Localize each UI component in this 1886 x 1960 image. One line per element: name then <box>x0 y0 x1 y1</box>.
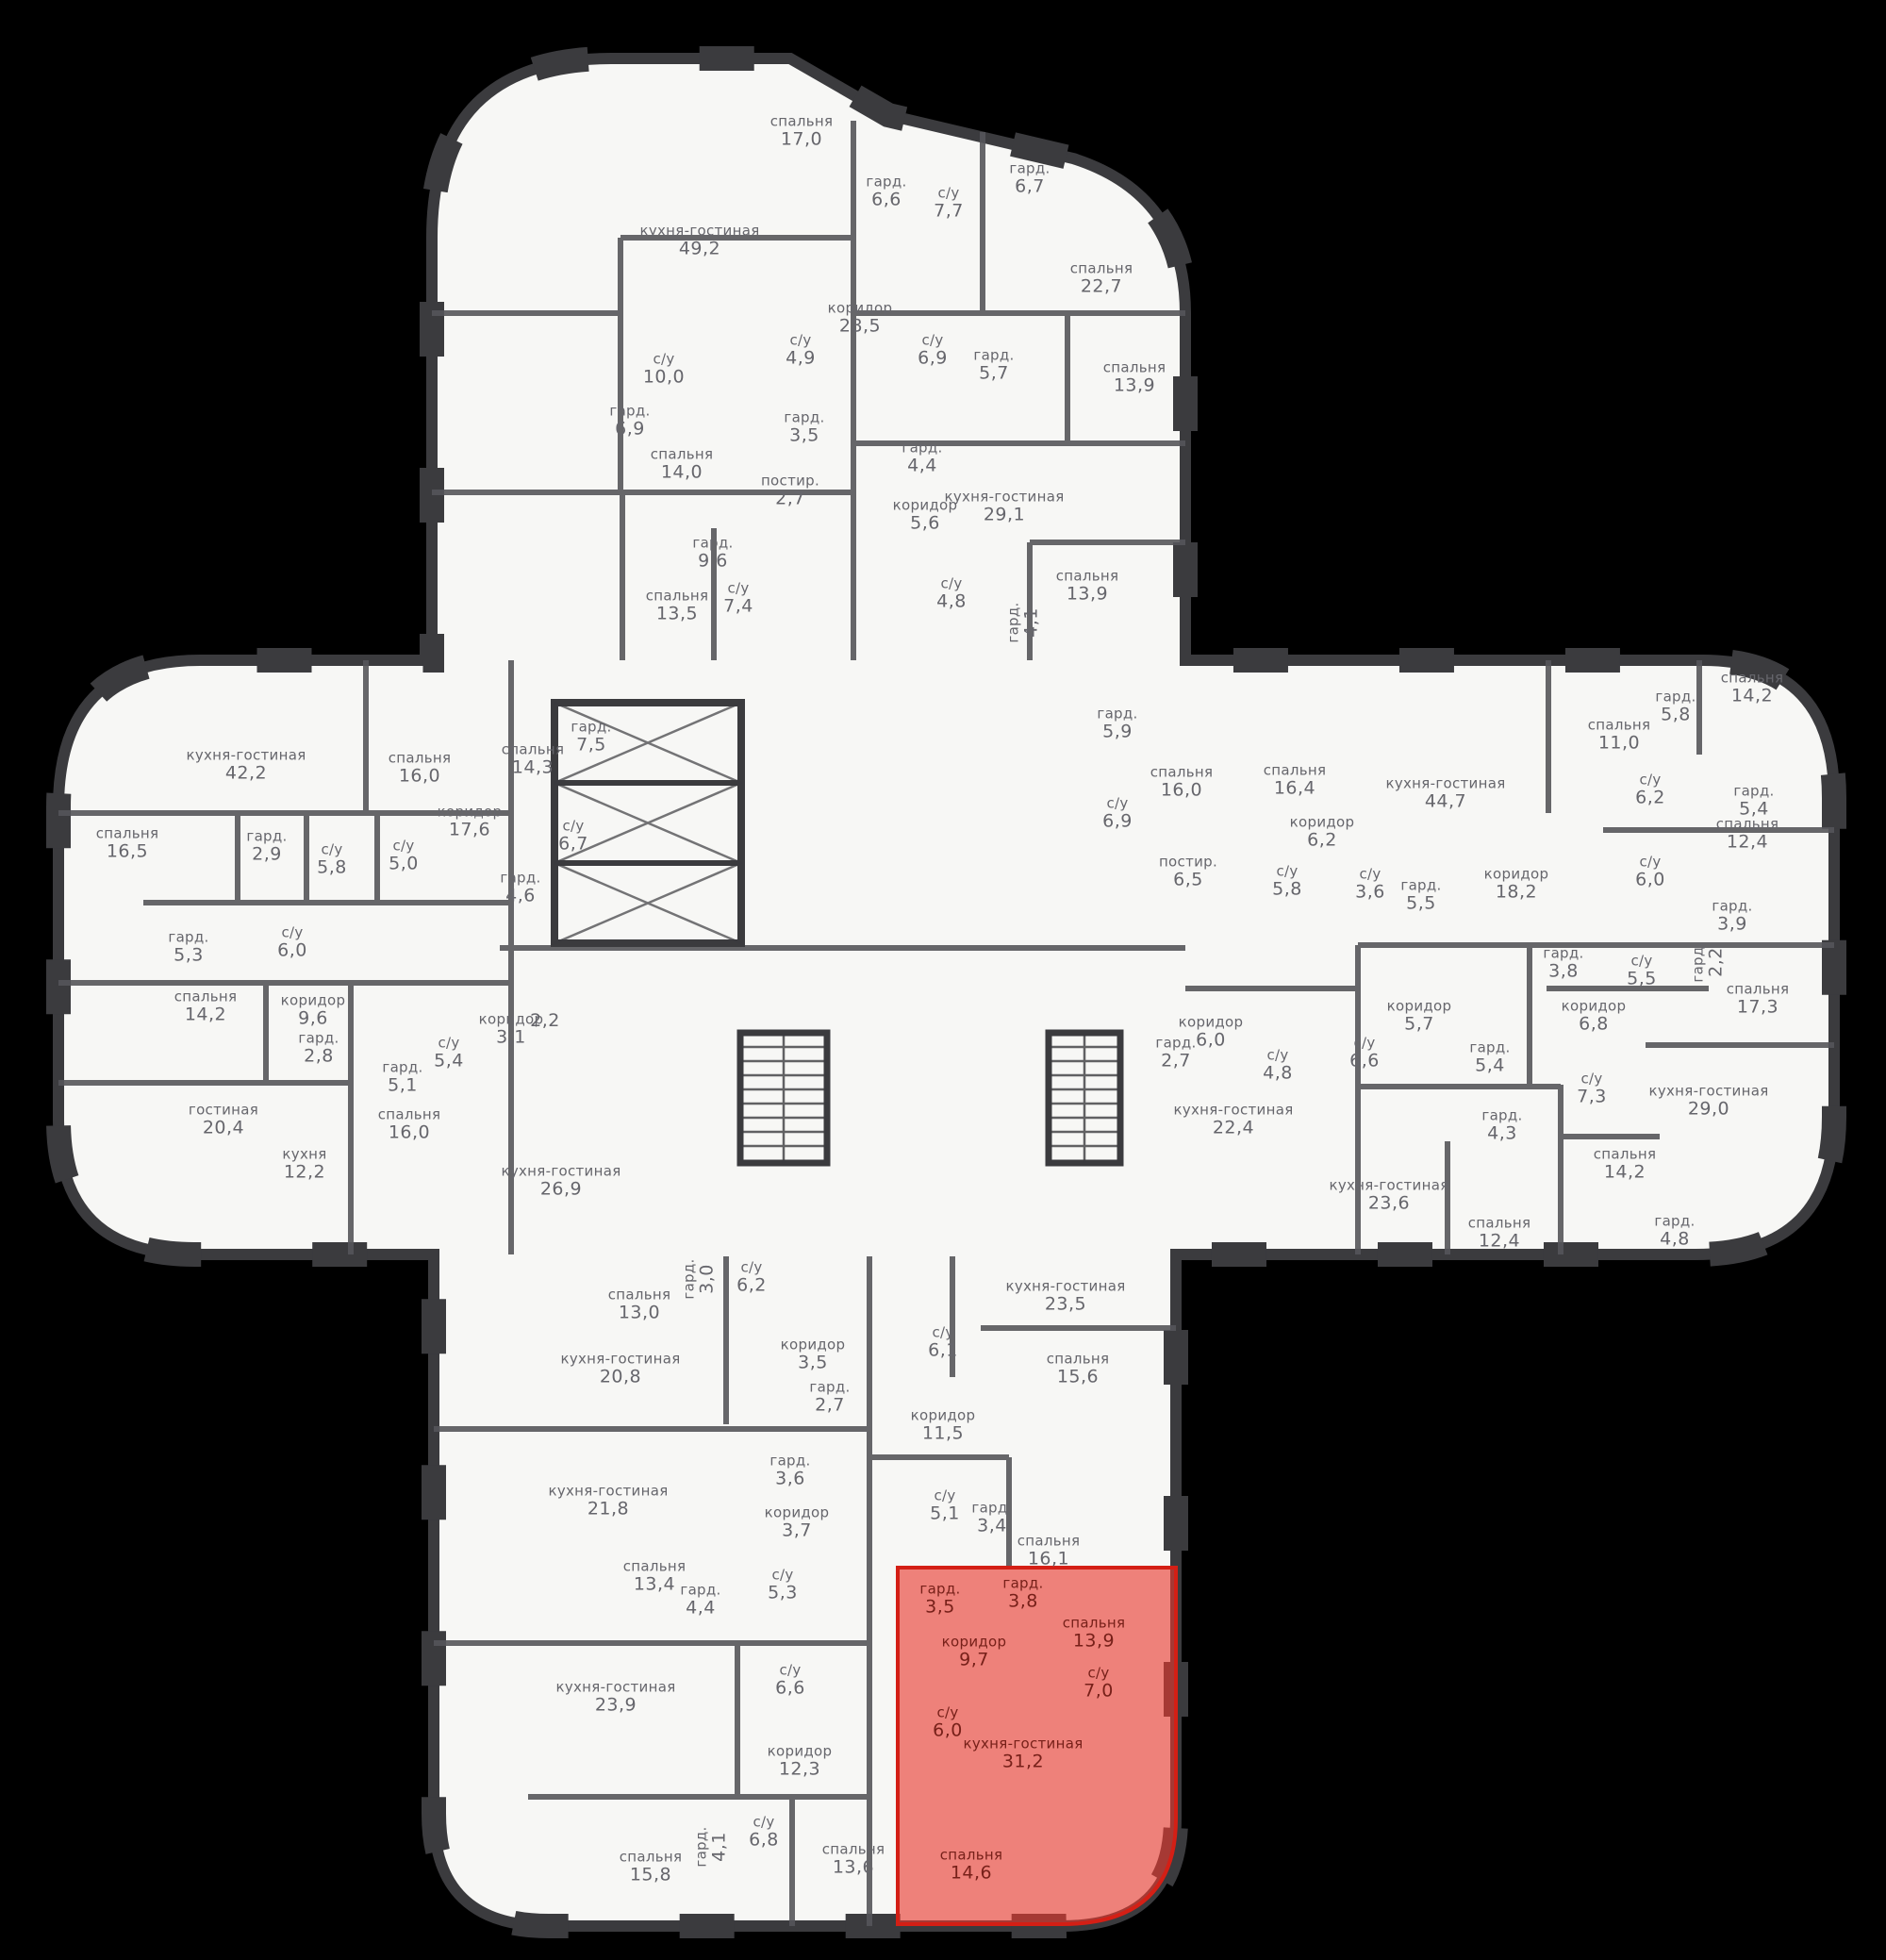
floor-plan: спальня17,0кухня-гостиная49,2гард.6,6с/у… <box>0 0 1886 1960</box>
highlighted-apartment[interactable] <box>898 1568 1176 1924</box>
building-outline <box>0 0 1886 1960</box>
